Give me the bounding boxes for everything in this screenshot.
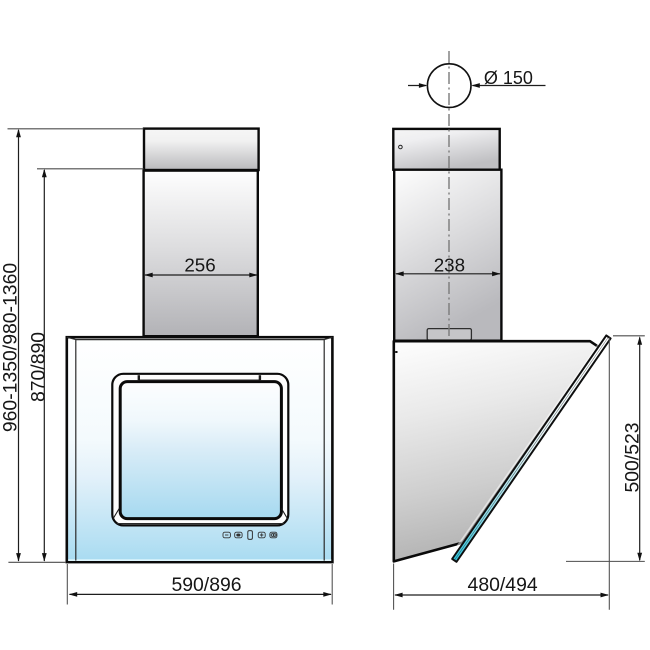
svg-text:Ø 150: Ø 150 [484, 68, 533, 88]
svg-text:960-1350/980-1360: 960-1350/980-1360 [0, 263, 22, 432]
svg-text:870/890: 870/890 [27, 332, 49, 402]
svg-text:500/523: 500/523 [622, 422, 644, 492]
svg-text:590/896: 590/896 [171, 574, 241, 596]
svg-text:238: 238 [434, 254, 465, 275]
svg-text:256: 256 [184, 255, 215, 276]
svg-text:480/494: 480/494 [468, 574, 538, 596]
